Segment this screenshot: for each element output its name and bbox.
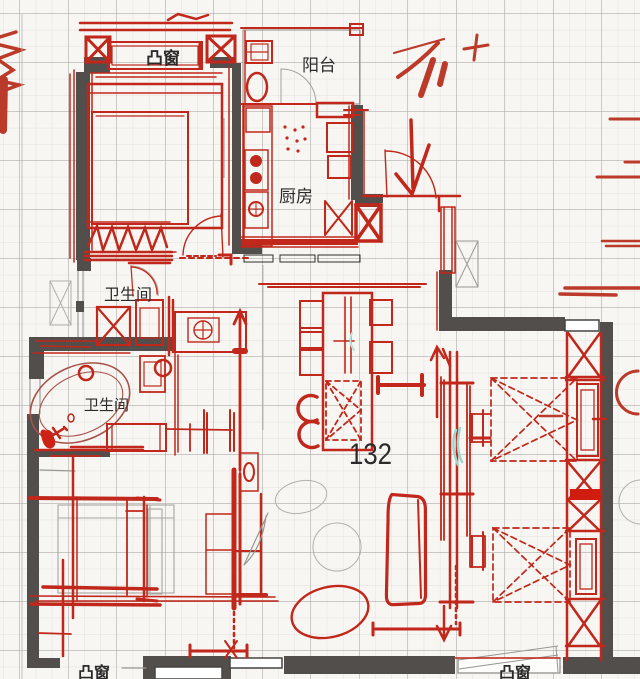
svg-text:卫生间: 卫生间 xyxy=(84,397,129,414)
svg-text:132: 132 xyxy=(349,438,392,471)
svg-text:凸窗: 凸窗 xyxy=(146,48,180,68)
svg-text:阳台: 阳台 xyxy=(302,56,336,75)
svg-text:厨房: 厨房 xyxy=(279,187,313,206)
svg-text:凸窗: 凸窗 xyxy=(78,663,110,679)
svg-text:卫生间: 卫生间 xyxy=(104,286,152,304)
svg-text:凸窗: 凸窗 xyxy=(499,663,531,679)
